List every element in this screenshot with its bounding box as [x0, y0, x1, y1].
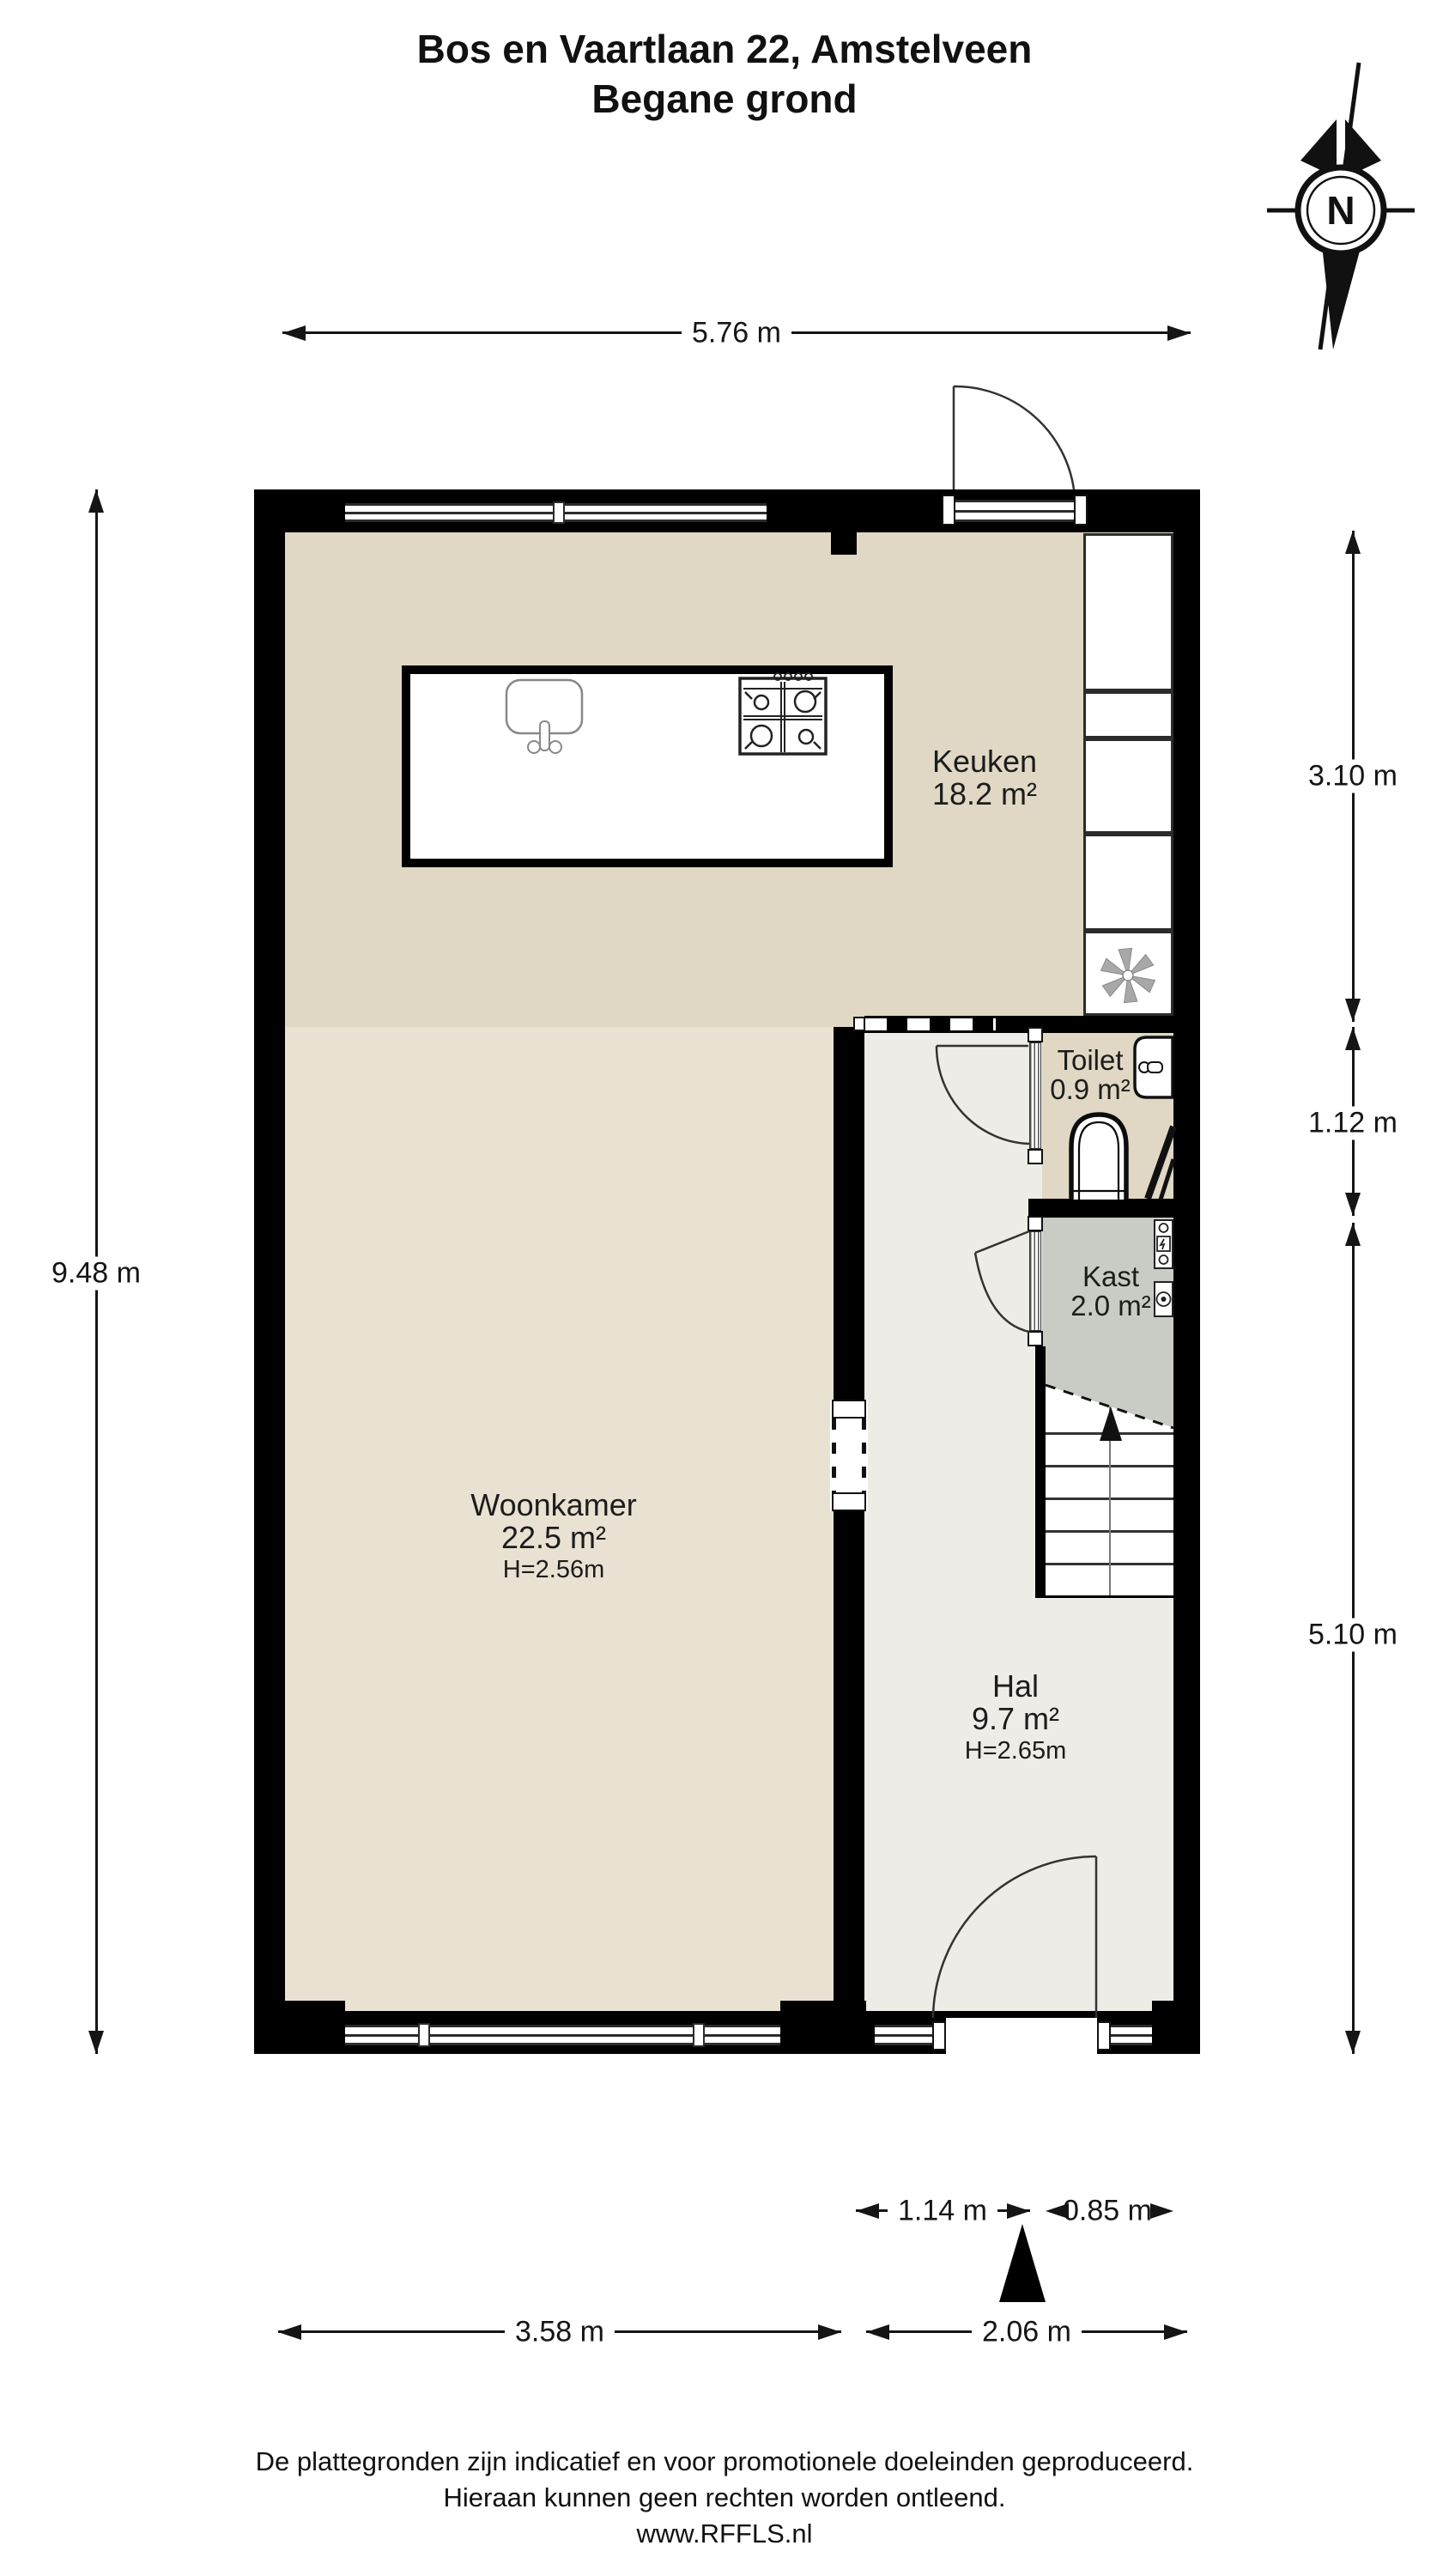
- backdoor-threshold: [955, 500, 1074, 522]
- frontdoor-frame-left: [932, 2021, 946, 2050]
- toilet-door-leaf: [1029, 1042, 1041, 1149]
- dim-left-height: 9.48 m: [41, 1257, 151, 1291]
- toilet-door-frame-bottom: [1028, 1149, 1043, 1164]
- title-address: Bos en Vaartlaan 22, Amstelveen: [0, 24, 1449, 74]
- arrow-right-icon: [1167, 325, 1191, 341]
- arrow-left-icon: [278, 2324, 301, 2340]
- entrance-marker: [999, 2224, 1046, 2302]
- arrow-down-icon: [88, 2031, 104, 2054]
- arrow-left-icon: [282, 325, 306, 341]
- frontdoor-frame-right: [1097, 2021, 1111, 2050]
- wall-left: [254, 489, 285, 2054]
- opening-frame-top: [832, 1400, 866, 1419]
- dim-right-toilet: 1.12 m: [1298, 1107, 1408, 1140]
- room-area: 22.5 m²: [470, 1522, 636, 1554]
- dim-right-hal: 5.10 m: [1298, 1619, 1408, 1652]
- dim-bottom-woonkamer: 3.58 m: [505, 2316, 615, 2349]
- arrow-down-icon: [1345, 999, 1361, 1022]
- room-name: Toilet: [1050, 1046, 1131, 1075]
- room-area: 2.0 m²: [1070, 1291, 1151, 1321]
- wall-stairs-left: [1035, 1346, 1046, 1598]
- ventilation-fan-icon: [1094, 941, 1162, 1010]
- room-name: Hal: [965, 1670, 1066, 1703]
- arrow-right-icon: [818, 2324, 841, 2340]
- page-title: Bos en Vaartlaan 22, Amstelveen Begane g…: [0, 24, 1449, 124]
- compass-dagger: [1322, 245, 1361, 349]
- wall-toilet-kast: [1028, 1199, 1173, 1218]
- arrow-up-icon: [1345, 1027, 1361, 1050]
- room-name: Kast: [1070, 1262, 1151, 1291]
- room-area: 0.9 m²: [1050, 1075, 1131, 1104]
- arrow-right-icon: [1007, 2203, 1030, 2219]
- disclaimer: De plattegronden zijn indicatief en voor…: [0, 2444, 1449, 2552]
- floorplan-page: Bos en Vaartlaan 22, Amstelveen Begane g…: [0, 0, 1449, 2576]
- dim-hal-corridor: 1.14 m: [888, 2195, 997, 2228]
- window-woonkamer-bottom: [345, 2025, 780, 2045]
- opening-frame-bottom: [832, 1492, 866, 1511]
- label-kast: Kast 2.0 m²: [1070, 1262, 1151, 1321]
- disclaimer-line2: Hieraan kunnen geen rechten worden ontle…: [0, 2480, 1449, 2516]
- room-name: Keuken: [932, 745, 1037, 778]
- window-mullion: [693, 2023, 705, 2047]
- disclaimer-line1: De plattegronden zijn indicatief en voor…: [0, 2444, 1449, 2480]
- compass-north-icon: N: [1236, 47, 1438, 356]
- arrow-right-icon: [1164, 2324, 1187, 2340]
- title-floor: Begane grond: [0, 74, 1449, 124]
- wall-middle: [834, 1027, 864, 2018]
- stove-icon: [738, 671, 828, 756]
- kast-door-leaf: [1029, 1231, 1041, 1331]
- dim-bottom-hal: 2.06 m: [972, 2316, 1082, 2349]
- washbasin-icon: [1133, 1036, 1173, 1099]
- kast-door-frame-bottom: [1028, 1331, 1043, 1346]
- frontdoor-opening: [946, 2018, 1097, 2054]
- room-ceiling-height: H=2.56m: [470, 1554, 636, 1585]
- label-keuken: Keuken 18.2 m²: [932, 745, 1037, 811]
- room-name: Woonkamer: [470, 1489, 636, 1522]
- kast-door-frame-top: [1028, 1216, 1043, 1231]
- wall-corner-bottom-left: [254, 2001, 345, 2054]
- stairs-up-arrow: [1100, 1406, 1122, 1441]
- arrow-down-icon: [1345, 2031, 1361, 2054]
- window-hal-left: [875, 2025, 932, 2045]
- arrow-up-icon: [1345, 531, 1361, 554]
- room-area: 9.7 m²: [965, 1703, 1066, 1735]
- arrow-up-icon: [1345, 1223, 1361, 1246]
- kitchen-unit-counter: [1083, 691, 1173, 738]
- backdoor-frame-right: [1074, 495, 1088, 526]
- sink-tap: [540, 721, 549, 750]
- window-hal-right: [1111, 2025, 1152, 2045]
- stair-bottom-edge: [1046, 1595, 1173, 1598]
- arrow-up-icon: [88, 489, 104, 513]
- arrow-left-icon: [866, 2324, 889, 2340]
- opening-dashes-right: [862, 1419, 866, 1492]
- kitchen-unit: [1083, 834, 1173, 931]
- arrow-right-icon: [1150, 2203, 1173, 2219]
- electric-meter-icon: [1154, 1219, 1173, 1269]
- arrow-left-icon: [856, 2203, 879, 2219]
- passage-keuken-hal: [864, 1016, 1173, 1033]
- dim-right-keuken: 3.10 m: [1298, 760, 1408, 793]
- kitchen-unit: [1083, 738, 1173, 834]
- sink-knob-left: [528, 741, 540, 753]
- window-mullion: [553, 501, 565, 524]
- opening-dashes-left: [832, 1419, 836, 1492]
- label-hal: Hal 9.7 m² H=2.65m: [965, 1670, 1066, 1766]
- wall-right: [1173, 489, 1200, 2054]
- backdoor-swing-arc: [954, 386, 1074, 489]
- toilet-door-frame-top: [1028, 1027, 1043, 1042]
- kitchen-unit-tall: [1083, 533, 1173, 691]
- water-meter-icon: [1154, 1281, 1173, 1317]
- arrow-down-icon: [1345, 1193, 1361, 1216]
- middle-wall-top-frame: [853, 1017, 865, 1031]
- room-area: 18.2 m²: [932, 778, 1037, 811]
- wall-stub-top: [831, 532, 857, 555]
- passage-dashes: [864, 1018, 996, 1030]
- room-ceiling-height: H=2.65m: [965, 1735, 1066, 1766]
- label-woonkamer: Woonkamer 22.5 m² H=2.56m: [470, 1489, 636, 1585]
- dim-top-width: 5.76 m: [682, 317, 791, 350]
- wc-toilet-icon: [1064, 1108, 1133, 1200]
- website-url: www.RFFLS.nl: [0, 2516, 1449, 2552]
- dim-kast-width: 0.85 m: [1052, 2195, 1162, 2228]
- sink-icon: [505, 678, 586, 757]
- label-toilet: Toilet 0.9 m²: [1050, 1046, 1131, 1104]
- compass-label: N: [1326, 188, 1355, 233]
- window-mullion: [418, 2023, 430, 2047]
- wall-corner-bottom-right: [1152, 2001, 1200, 2054]
- sink-knob-right: [549, 741, 561, 753]
- backdoor-frame-left: [942, 495, 955, 526]
